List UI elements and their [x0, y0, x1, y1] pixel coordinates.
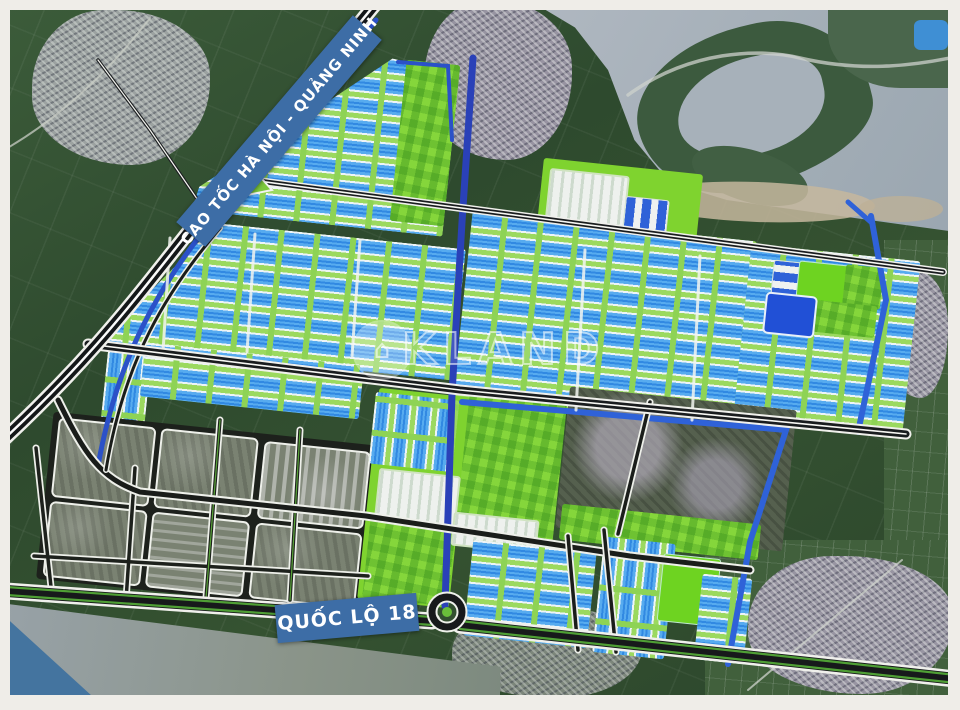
park-road-branch-casing	[568, 402, 650, 652]
national-road-label-text: QUỐC LỘ 18	[276, 601, 417, 635]
field-road-northwest	[10, 18, 150, 155]
roundabout-island	[442, 607, 452, 617]
map-world: CAO TỐC HÀ NỘI - QUẢNG NINH QUỐC LỘ 18 ⌂…	[10, 10, 948, 695]
watermark-logo-glyph: ⌂	[374, 335, 391, 365]
internal-road	[692, 256, 700, 420]
north-boundary-road-line	[236, 178, 943, 272]
internal-road	[247, 234, 255, 352]
masterplan-map: CAO TỐC HÀ NỘI - QUẢNG NINH QUỐC LỘ 18 ⌂…	[10, 10, 948, 695]
riverside-road	[628, 53, 948, 95]
canal-east	[858, 216, 886, 432]
canal-north	[398, 62, 452, 140]
canal-river-link	[848, 202, 873, 224]
image-frame: CAO TỐC HÀ NỘI - QUẢNG NINH QUỐC LỘ 18 ⌂…	[0, 0, 960, 710]
watermark-text: KLAND	[402, 324, 607, 375]
